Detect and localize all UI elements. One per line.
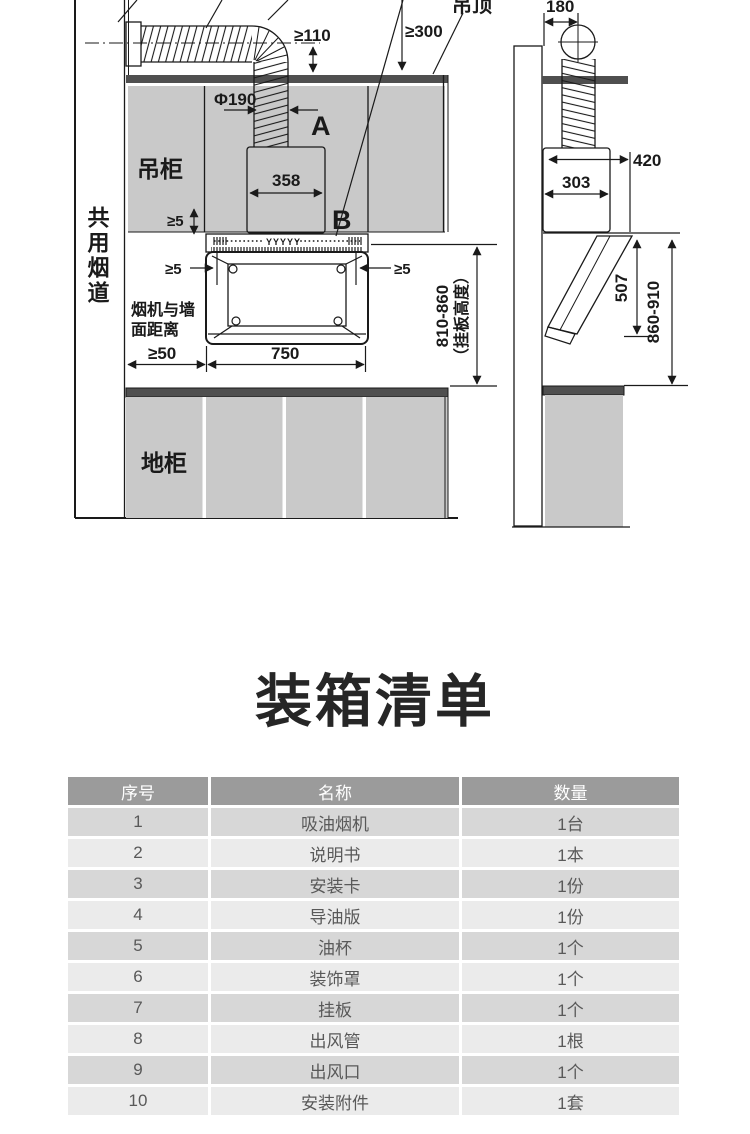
- table-row: 6 装饰罩 1个: [68, 963, 679, 991]
- table-row: 3 安装卡 1份: [68, 870, 679, 898]
- packing-list-table: 序号 名称 数量 1 吸油烟机 1台 2 说明书 1本 3 安装卡 1份 4 导…: [68, 777, 679, 1118]
- dim-750-label: 750: [271, 344, 299, 363]
- table-row: 2 说明书 1本: [68, 839, 679, 867]
- duct-vertical-side: [562, 59, 595, 148]
- table-row: 1 吸油烟机 1台: [68, 808, 679, 836]
- table-row: 8 出风管 1根: [68, 1025, 679, 1053]
- hood-wall-distance-line1: 烟机与墙: [131, 300, 195, 319]
- duct-horizontal: [141, 26, 252, 62]
- table-row: 4 导油版 1份: [68, 901, 679, 929]
- side-view: 180 303 420 507 860-910: [512, 0, 688, 527]
- countertop-side: [543, 386, 624, 395]
- front-view: 吊顶 ≥300 ≥110 Φ190 A B 吊柜 358 ≥5 ≥5 ≥5 共用…: [75, 0, 497, 518]
- dim-303-label: 303: [562, 173, 590, 192]
- table-row: 10 安装附件 1套: [68, 1087, 679, 1115]
- shared-flue-label: 共用烟道: [85, 206, 110, 306]
- page-title: 装箱清单: [0, 656, 750, 738]
- vent-marks: YYYYY: [266, 237, 301, 247]
- brick-wall: [514, 46, 542, 526]
- table-header-row: 序号 名称 数量: [68, 777, 679, 805]
- vent-end-grille-right: [348, 237, 363, 245]
- letter-a-label: A: [311, 111, 331, 141]
- table-row: 9 出风口 1个: [68, 1056, 679, 1084]
- header-name: 名称: [211, 777, 462, 805]
- vent-comb-strip: [211, 247, 363, 252]
- min-5-right-label: ≥5: [394, 261, 411, 278]
- header-qty: 数量: [462, 777, 679, 805]
- plate-height-note-label: （挂板高度）: [452, 268, 471, 364]
- countertop-front: [126, 388, 448, 397]
- min-50-label: ≥50: [148, 344, 176, 363]
- hood-corner-hinges: [229, 265, 345, 325]
- header-no: 序号: [68, 777, 211, 805]
- installation-diagram: 吊顶 ≥300 ≥110 Φ190 A B 吊柜 358 ≥5 ≥5 ≥5 共用…: [0, 0, 750, 540]
- manual-page: 吊顶 ≥300 ≥110 Φ190 A B 吊柜 358 ≥5 ≥5 ≥5 共用…: [0, 0, 750, 1134]
- upper-cabinet-label: 吊柜: [137, 156, 183, 182]
- dim-507-label: 507: [612, 274, 631, 302]
- base-cabinet-label: 地柜: [141, 450, 187, 476]
- dim-358-label: 358: [272, 171, 300, 190]
- min-5-top-label: ≥5: [167, 213, 184, 230]
- duct-diameter-label: Φ190: [214, 90, 256, 109]
- base-cabinet-side: [545, 395, 623, 527]
- letter-b-label: B: [332, 205, 352, 235]
- vent-end-grille-left: [212, 237, 227, 245]
- hood-foot-side: [545, 327, 575, 344]
- min-110-label: ≥110: [294, 26, 331, 45]
- dim-420-label: 420: [633, 151, 661, 170]
- min-300-label: ≥300: [405, 22, 443, 41]
- table-row: 7 挂板 1个: [68, 994, 679, 1022]
- ceiling-label: 吊顶: [452, 0, 492, 17]
- table-row: 5 油杯 1个: [68, 932, 679, 960]
- hood-wall-distance-line2: 面距离: [131, 320, 179, 339]
- hood-screen: [228, 264, 346, 326]
- min-5-left-label: ≥5: [165, 261, 182, 278]
- plate-height-range-label: 810-860: [433, 285, 452, 347]
- dim-860-910-label: 860-910: [644, 281, 663, 343]
- dim-180-label: 180: [546, 0, 574, 16]
- duct-vertical-front: [254, 62, 288, 147]
